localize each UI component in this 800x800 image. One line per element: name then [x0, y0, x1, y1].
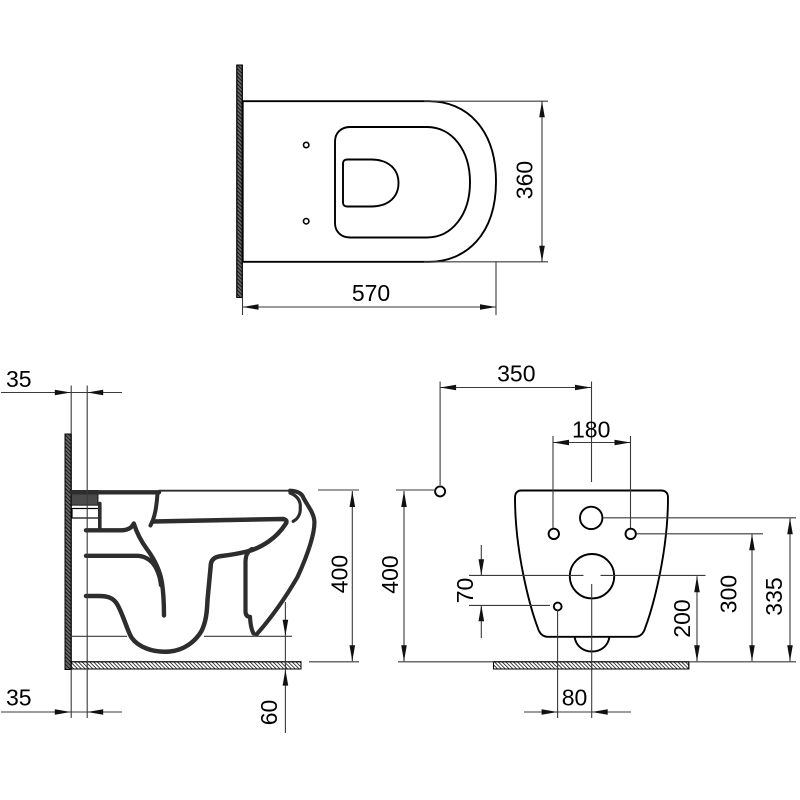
svg-text:60: 60 [256, 700, 282, 726]
svg-text:180: 180 [572, 416, 610, 442]
svg-text:70: 70 [452, 578, 478, 604]
svg-text:300: 300 [716, 575, 742, 613]
svg-text:400: 400 [377, 555, 403, 593]
svg-text:80: 80 [562, 685, 588, 711]
svg-text:570: 570 [352, 280, 390, 306]
svg-text:335: 335 [761, 577, 787, 615]
svg-text:400: 400 [327, 555, 353, 593]
svg-text:350: 350 [497, 360, 535, 386]
svg-text:200: 200 [669, 599, 695, 637]
svg-text:35: 35 [6, 366, 32, 392]
svg-text:360: 360 [512, 161, 538, 199]
svg-text:35: 35 [6, 684, 32, 710]
